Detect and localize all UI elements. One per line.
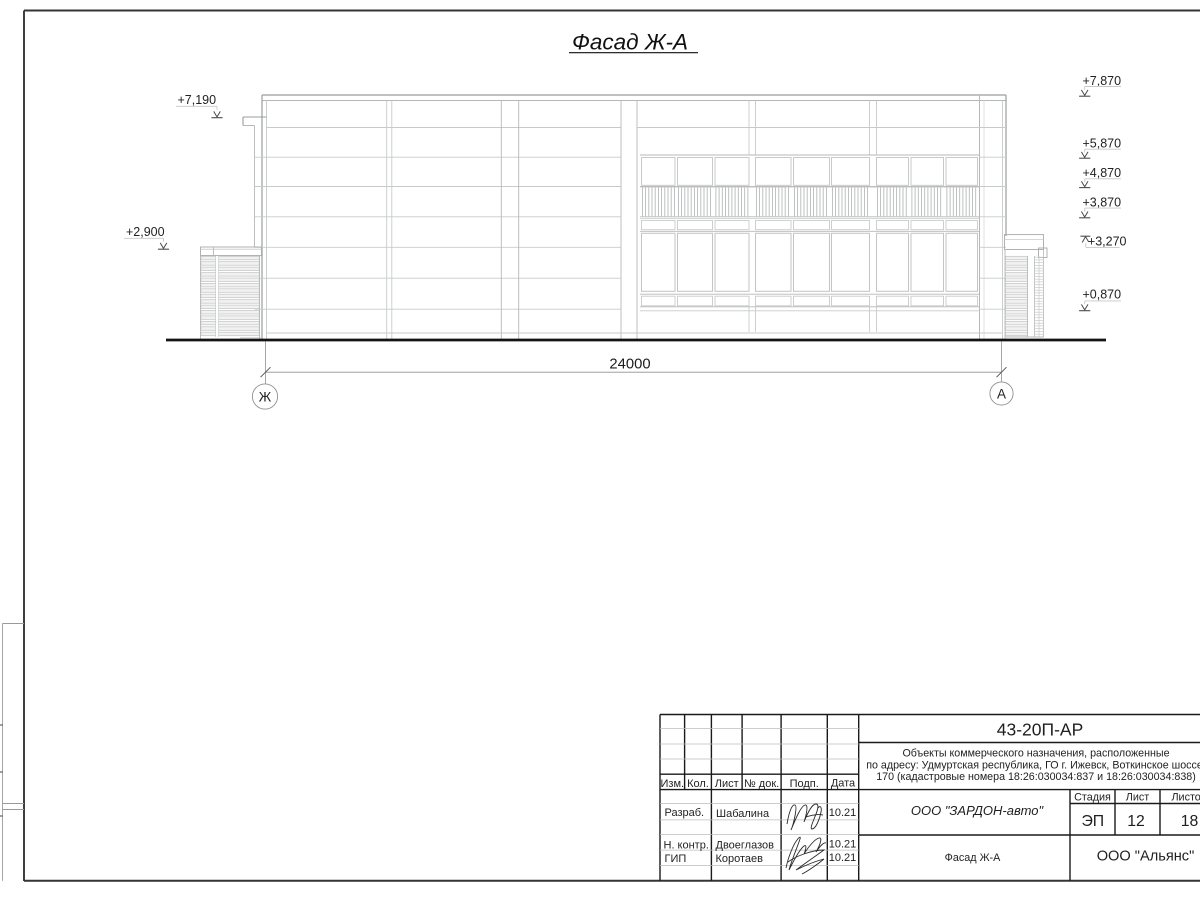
svg-text:10.21: 10.21	[829, 839, 857, 851]
svg-text:+0,870: +0,870	[1083, 288, 1122, 302]
svg-text:Листов: Листов	[1171, 792, 1200, 804]
svg-text:Стадия: Стадия	[1074, 792, 1111, 804]
svg-text:А: А	[997, 387, 1006, 402]
svg-text:+3,270: +3,270	[1088, 235, 1127, 249]
svg-text:по адресу: Удмуртская республи: по адресу: Удмуртская республика, ГО г. …	[866, 760, 1200, 772]
svg-text:+7,870: +7,870	[1083, 74, 1122, 88]
svg-text:24000: 24000	[609, 357, 650, 373]
svg-text:+4,870: +4,870	[1083, 166, 1122, 180]
svg-text:+7,190: +7,190	[178, 93, 217, 107]
svg-text:12: 12	[1127, 813, 1145, 830]
svg-text:Подп.: Подп.	[790, 778, 819, 790]
svg-text:ООО "Альянс": ООО "Альянс"	[1097, 849, 1195, 865]
svg-text:Дата: Дата	[831, 778, 856, 790]
svg-text:Объекты коммерческого назначен: Объекты коммерческого назначения, распол…	[902, 748, 1169, 760]
svg-text:43-20П-АР: 43-20П-АР	[997, 720, 1084, 740]
svg-text:+5,870: +5,870	[1083, 137, 1122, 151]
svg-text:ООО "ЗАРДОН-авто": ООО "ЗАРДОН-авто"	[911, 803, 1045, 818]
svg-text:Коротаев: Коротаев	[716, 853, 764, 865]
svg-text:10.21: 10.21	[829, 852, 857, 864]
svg-text:Двоеглазов: Двоеглазов	[716, 840, 775, 852]
svg-text:ЭП: ЭП	[1081, 813, 1104, 830]
svg-text:Шабалина: Шабалина	[716, 808, 770, 820]
svg-text:+3,870: +3,870	[1083, 196, 1122, 210]
svg-text:Лист: Лист	[715, 778, 739, 790]
svg-text:ГИП: ГИП	[665, 853, 687, 865]
svg-text:Фасад Ж-А: Фасад Ж-А	[572, 30, 688, 55]
svg-text:Фасад Ж-А: Фасад Ж-А	[945, 852, 1001, 864]
svg-text:10.21: 10.21	[829, 807, 857, 819]
svg-text:Н. контр.: Н. контр.	[664, 840, 709, 852]
svg-text:Ж: Ж	[259, 390, 272, 405]
svg-text:Разраб.: Разраб.	[665, 807, 705, 819]
svg-text:+2,900: +2,900	[126, 225, 165, 239]
svg-text:170 (кадастровые номера 18:26:: 170 (кадастровые номера 18:26:030034:837…	[876, 771, 1196, 783]
svg-text:№ док.: № док.	[744, 778, 779, 790]
svg-text:Изм.: Изм.	[661, 778, 685, 790]
svg-text:Лист: Лист	[1126, 792, 1150, 804]
svg-text:Кол.: Кол.	[687, 778, 709, 790]
svg-text:18: 18	[1181, 813, 1199, 830]
